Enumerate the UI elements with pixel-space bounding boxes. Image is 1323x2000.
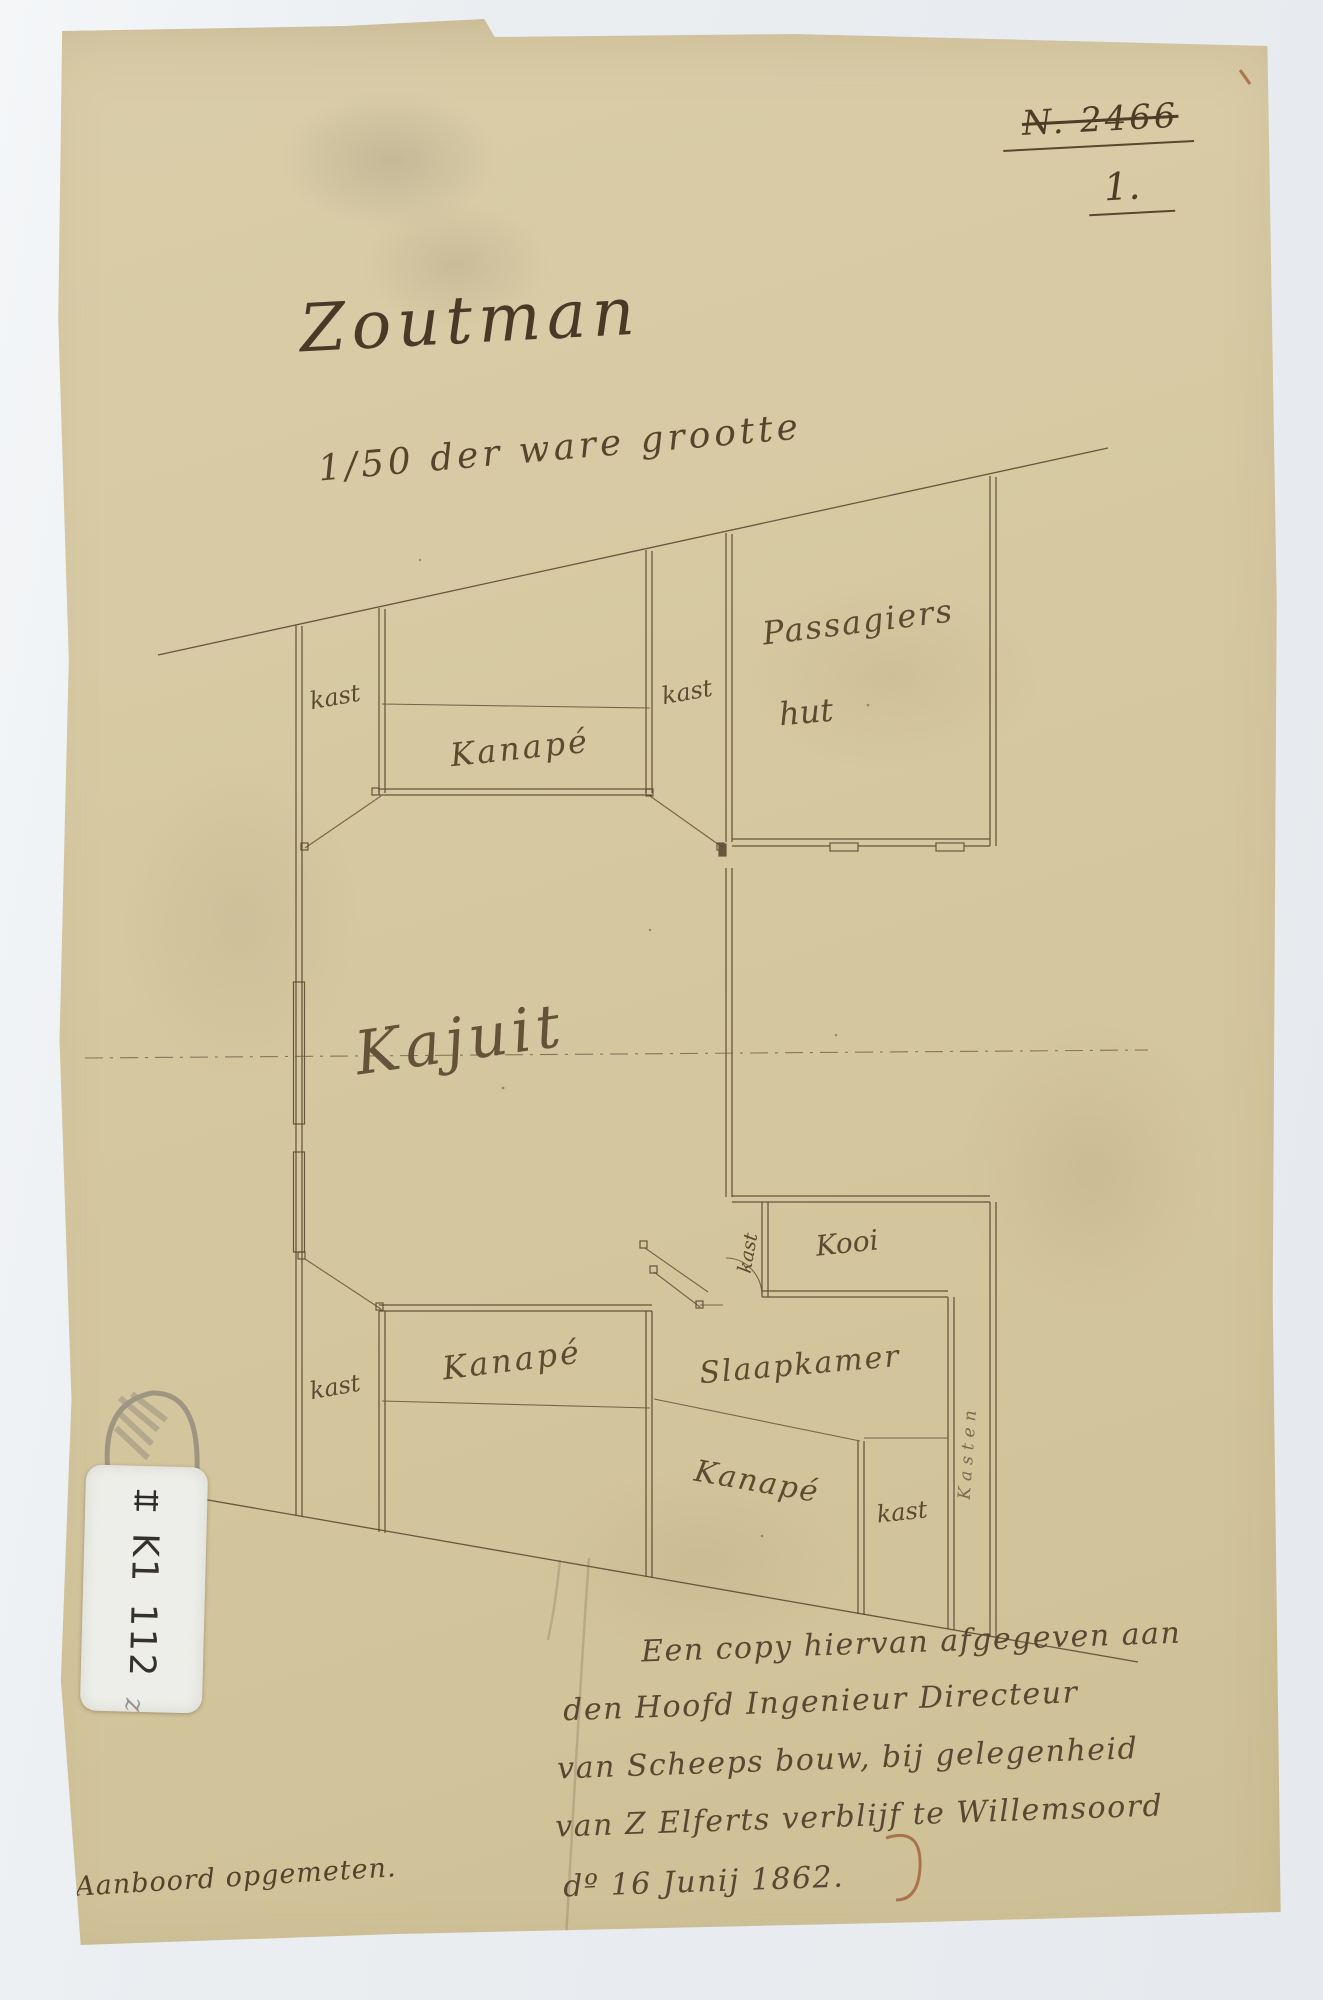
room-label-kast-bottom: kast	[875, 1495, 928, 1528]
archive-sticker: K1 112 z	[80, 1464, 208, 1713]
sticker-number: 112	[121, 1603, 164, 1679]
archive-sticker-content: K1 112 z	[80, 1464, 208, 1713]
sticker-code: K1	[124, 1533, 166, 1585]
ink-specks	[419, 559, 954, 1651]
sticker-pencil-mark: z	[119, 1698, 149, 1712]
sheet-number: 1.	[1087, 162, 1176, 216]
centerline	[85, 1050, 1148, 1058]
catalog-symbol-icon	[126, 1488, 167, 1514]
room-label-passagiers-hut-line2: hut	[777, 691, 834, 734]
wall-panels	[294, 982, 305, 1252]
archive-number-text: N. 2466	[1021, 96, 1180, 144]
sheet-number-text: 1.	[1103, 164, 1142, 210]
room-label-kooi: Kooi	[814, 1223, 880, 1262]
paper-sheet: N. 2466 1. Zoutman 1/50 der ware grootte…	[0, 0, 1323, 2000]
archive-number: N. 2466	[1001, 95, 1194, 152]
